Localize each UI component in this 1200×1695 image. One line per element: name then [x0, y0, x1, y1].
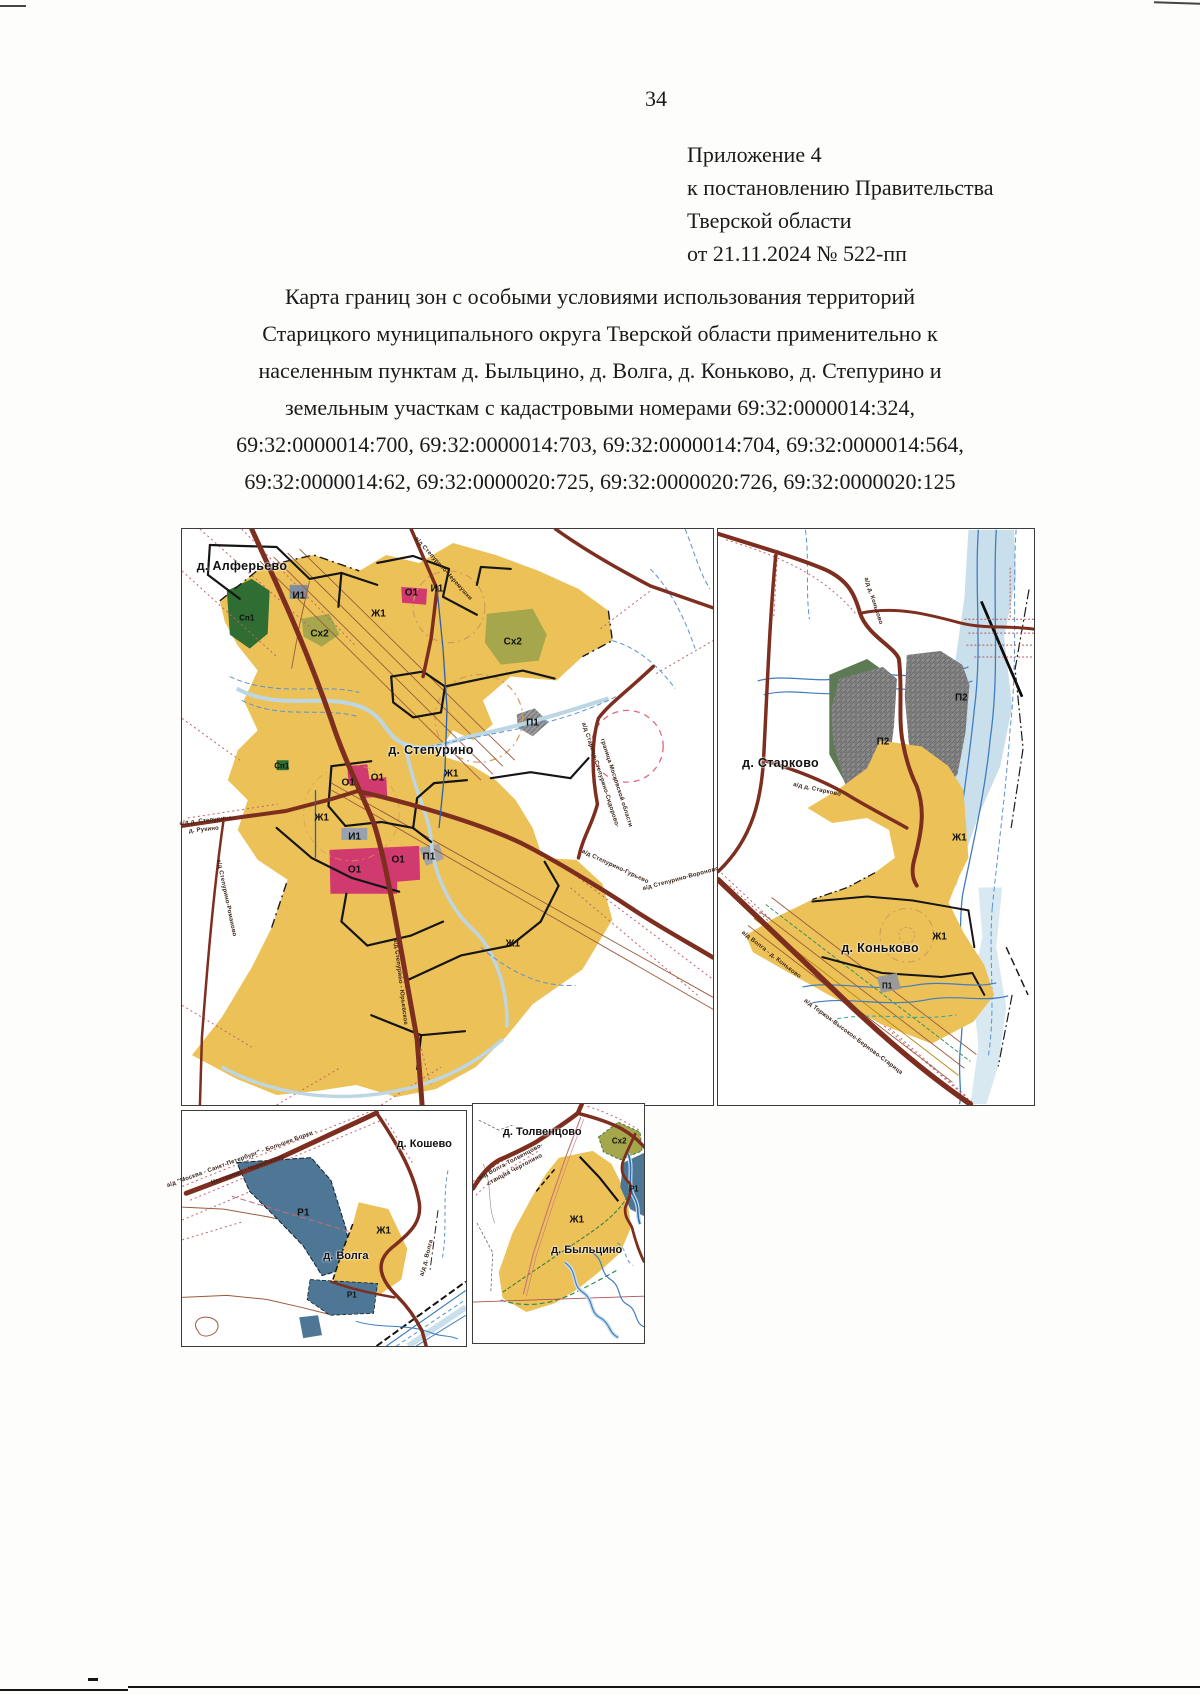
place-label: д. Волга: [323, 1250, 368, 1262]
zone-label: Р1: [297, 1208, 309, 1219]
zone-label: Ж1: [569, 1214, 584, 1225]
zone-label: Ж1: [376, 1226, 391, 1237]
title-line: Старицкого муниципального округа Тверско…: [150, 315, 1050, 352]
scan-edge-line: [128, 1686, 1200, 1688]
zone-label: Ж1: [444, 769, 459, 780]
zone-label: О1: [391, 854, 404, 865]
zone-label: О1: [371, 773, 384, 784]
zone-label: Сх2: [310, 628, 328, 639]
place-label: д. Быльцино: [551, 1244, 622, 1256]
zone-label: П1: [882, 982, 892, 991]
road-label: а/д Степурино - Юрьевское: [392, 939, 409, 1026]
zone-label: П1: [423, 851, 436, 862]
zone-label: Ж1: [371, 608, 386, 619]
scan-mark: [0, 5, 26, 7]
document-title: Карта границ зон с особыми условиями исп…: [150, 278, 1050, 500]
appendix-line: от 21.11.2024 № 522-пп: [687, 237, 993, 270]
appendix-line: Приложение 4: [687, 138, 993, 171]
page-number: 34: [645, 86, 667, 112]
road-label: а/д д. Старково: [793, 782, 842, 798]
zone-label: О1: [348, 864, 361, 875]
road-label: а/д д. Волга: [420, 1239, 436, 1277]
zone-label: О1: [405, 587, 418, 598]
place-label: д. Алферьево: [197, 559, 288, 573]
map-labels-konkovo: д. СтарковоП2П2Ж1Ж1д. КоньковоП1а/д д. С…: [718, 529, 1034, 1105]
zone-label: Ж1: [506, 939, 521, 950]
zone-label: Сп1: [274, 762, 289, 771]
zone-label: Сх2: [612, 1136, 627, 1145]
place-label: д. Старково: [742, 756, 819, 770]
zone-label: Ж1: [314, 813, 329, 824]
road-label: а/д д. Степурино-: [179, 815, 234, 827]
road-label: а/д Степурино-Вороново: [642, 866, 720, 892]
road-label: а/д Волга - д. Коньково: [740, 930, 802, 980]
title-line: 69:32:0000014:700, 69:32:0000014:703, 69…: [150, 426, 1050, 463]
document-page: 34 Приложение 4 к постановлению Правител…: [0, 0, 1200, 1695]
map-panel-bylcino: д. ТолвенцовоСх2Р1Ж1д. Быльциноа/д Волга…: [472, 1103, 645, 1344]
appendix-line: Тверской области: [687, 204, 993, 237]
map-panel-konkovo: д. СтарковоП2П2Ж1Ж1д. КоньковоП1а/д д. С…: [717, 528, 1035, 1106]
appendix-header: Приложение 4 к постановлению Правительст…: [687, 138, 993, 270]
map-labels-bylcino: д. ТолвенцовоСх2Р1Ж1д. Быльциноа/д Волга…: [473, 1104, 644, 1343]
road-label: д. Рукино: [188, 826, 219, 835]
title-line: 69:32:0000014:62, 69:32:0000020:725, 69:…: [150, 463, 1050, 500]
place-label: д. Коньково: [841, 941, 919, 955]
zone-label: Ж1: [932, 931, 947, 942]
place-label: д. Толвенцово: [503, 1126, 582, 1138]
road-label: а/д д. Коньково: [863, 577, 884, 626]
zone-label: П2: [955, 693, 968, 704]
title-line: Карта границ зон с особыми условиями исп…: [150, 278, 1050, 315]
zone-label: П1: [526, 718, 539, 729]
road-label: а/д Торжок-Высокое-Берново-Старица: [803, 998, 904, 1076]
scan-mark: [88, 1678, 98, 1681]
place-label: д. Степурино: [388, 743, 473, 757]
zone-label: И1: [348, 832, 361, 843]
zone-label: Сх2: [504, 637, 522, 648]
place-label: д. Кошево: [397, 1138, 452, 1150]
zone-label: Р1: [347, 1290, 357, 1299]
zone-label: Ж1: [952, 832, 967, 843]
title-line: земельным участкам с кадастровыми номера…: [150, 389, 1050, 426]
zone-label: И1: [292, 590, 305, 601]
map-panel-volga: д. КошевоР1Ж1д. ВолгаР1а/д "Москва - Сан…: [181, 1110, 467, 1347]
zone-label: О1: [342, 778, 355, 789]
scan-edge-line: [0, 1689, 128, 1691]
zone-label: Сп1: [239, 613, 254, 622]
road-label: а/д Степурино-Романово: [215, 859, 237, 937]
road-label: а/д Степурино-Гурьево: [581, 849, 650, 885]
appendix-line: к постановлению Правительства: [687, 171, 993, 204]
road-label: а/д "Москва - Санкт-Петербург" - Большие…: [166, 1129, 318, 1189]
zone-label: Р1: [629, 1185, 639, 1194]
title-line: населенным пунктам д. Быльцино, д. Волга…: [150, 352, 1050, 389]
scan-mark: [1154, 1, 1200, 5]
zone-label: П2: [877, 737, 890, 748]
map-labels-volga: д. КошевоР1Ж1д. ВолгаР1а/д "Москва - Сан…: [182, 1111, 466, 1346]
map-panel-stepurino: д. АлферьевоСп1И1Сх2О1И1Ж1Сх2П1д. Степур…: [181, 528, 714, 1106]
map-labels-stepurino: д. АлферьевоСп1И1Сх2О1И1Ж1Сх2П1д. Степур…: [182, 529, 713, 1105]
zone-label: И1: [431, 583, 444, 594]
